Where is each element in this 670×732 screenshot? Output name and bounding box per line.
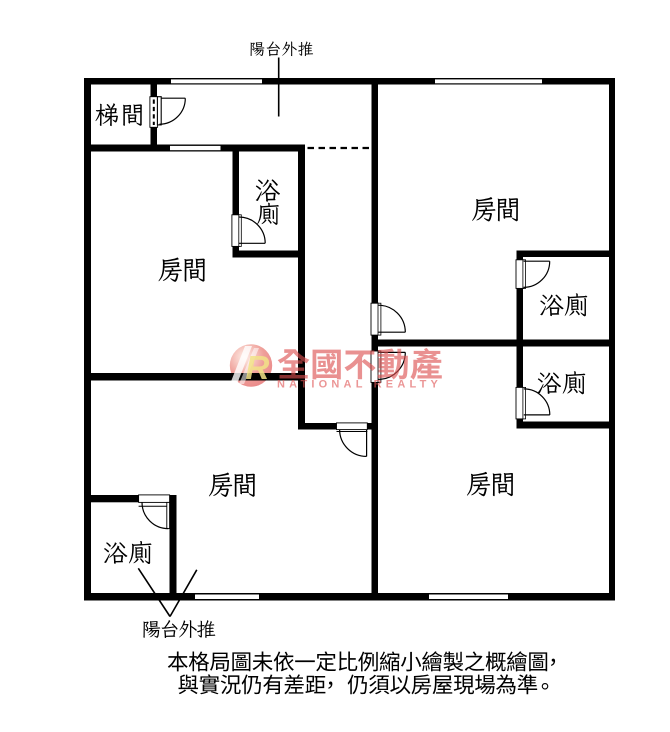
svg-text:NATIONAL REALTY: NATIONAL REALTY [277, 379, 442, 391]
svg-text:R: R [246, 349, 270, 386]
